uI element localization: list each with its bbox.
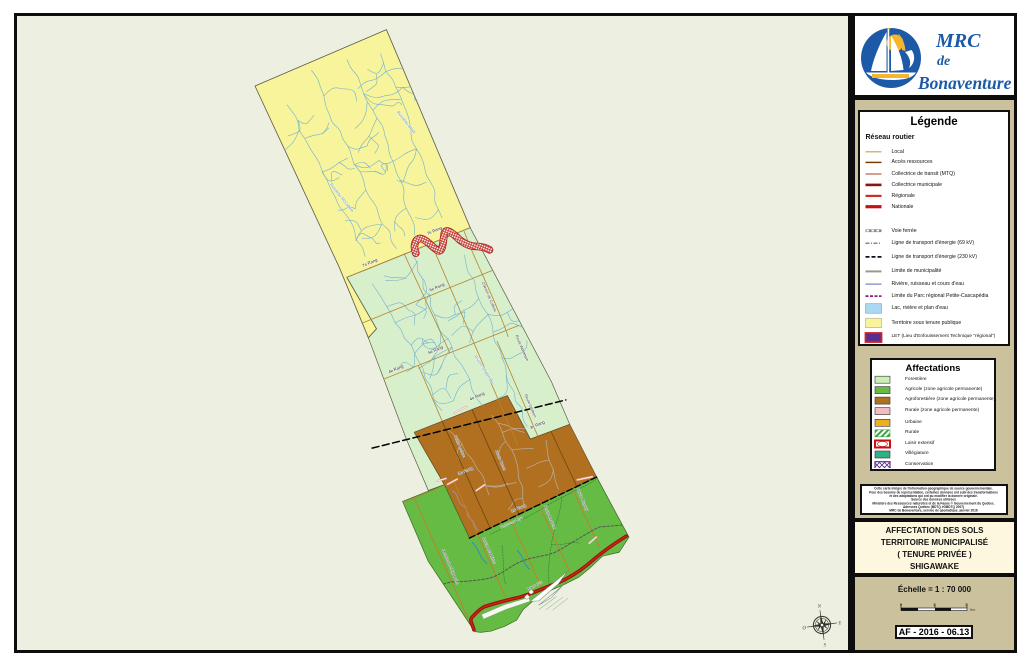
svg-text:2: 2: [965, 603, 967, 607]
svg-text:N: N: [817, 604, 823, 610]
svg-text:1: 1: [933, 603, 935, 607]
svg-text:0: 0: [900, 603, 902, 607]
svg-text:S: S: [823, 643, 827, 648]
svg-text:E: E: [837, 621, 842, 627]
svg-text:MRC: MRC: [935, 30, 981, 52]
svg-text:MRC de Bonaventure, service de: MRC de Bonaventure, service de géomatiqu…: [889, 509, 978, 512]
svg-text:Km: Km: [970, 608, 975, 612]
svg-text:Bonaventure: Bonaventure: [917, 73, 1012, 93]
svg-text:de: de: [937, 54, 950, 69]
svg-text:O: O: [802, 626, 807, 632]
